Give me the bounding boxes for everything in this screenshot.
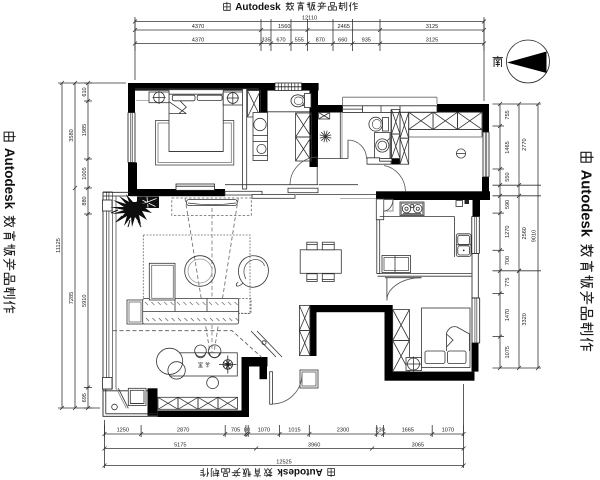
svg-text:1665: 1665 — [402, 428, 414, 434]
svg-text:550: 550 — [505, 172, 511, 181]
svg-text:2870: 2870 — [177, 428, 189, 434]
svg-text:3065: 3065 — [412, 443, 424, 449]
svg-text:1465: 1465 — [505, 141, 511, 153]
svg-text:1070: 1070 — [442, 428, 454, 434]
svg-text:Autodesk: Autodesk — [578, 170, 594, 238]
svg-text:1015: 1015 — [288, 428, 300, 434]
svg-text:1470: 1470 — [505, 309, 511, 321]
svg-text:880: 880 — [82, 196, 88, 205]
svg-text:3960: 3960 — [308, 443, 320, 449]
svg-text:555: 555 — [295, 38, 304, 44]
svg-text:695: 695 — [82, 393, 88, 402]
svg-text:Autodesk: Autodesk — [235, 2, 281, 13]
svg-text:670: 670 — [276, 38, 285, 44]
svg-text:610: 610 — [82, 87, 88, 96]
svg-text:2560: 2560 — [522, 227, 528, 239]
svg-text:12525: 12525 — [276, 460, 292, 466]
svg-text:1270: 1270 — [505, 225, 511, 237]
svg-text:3125: 3125 — [426, 24, 438, 30]
svg-text:1005: 1005 — [82, 167, 88, 179]
svg-text:7285: 7285 — [69, 292, 75, 304]
svg-text:3125: 3125 — [426, 38, 438, 44]
svg-text:3580: 3580 — [69, 129, 75, 141]
svg-text:Autodesk: Autodesk — [277, 466, 323, 477]
svg-text:775: 775 — [505, 277, 511, 286]
svg-text:1985: 1985 — [82, 124, 88, 136]
svg-text:4370: 4370 — [192, 24, 204, 30]
svg-text:4370: 4370 — [192, 38, 204, 44]
svg-text:935: 935 — [362, 38, 371, 44]
svg-text:870: 870 — [316, 38, 325, 44]
svg-text:2770: 2770 — [522, 138, 528, 150]
svg-text:660: 660 — [338, 38, 347, 44]
svg-text:705: 705 — [231, 428, 240, 434]
svg-text:1560: 1560 — [278, 24, 290, 30]
svg-text:1070: 1070 — [258, 428, 270, 434]
svg-text:590: 590 — [505, 200, 511, 209]
svg-text:Autodesk: Autodesk — [2, 148, 17, 210]
svg-text:335: 335 — [261, 38, 270, 44]
svg-text:2300: 2300 — [337, 428, 349, 434]
svg-text:1250: 1250 — [117, 428, 129, 434]
svg-text:12110: 12110 — [302, 16, 317, 22]
svg-text:11125: 11125 — [56, 238, 62, 253]
svg-text:700: 700 — [505, 256, 511, 265]
svg-text:5175: 5175 — [174, 443, 186, 449]
svg-text:9010: 9010 — [532, 230, 538, 242]
svg-text:1075: 1075 — [505, 346, 511, 358]
svg-text:3320: 3320 — [522, 313, 528, 325]
svg-text:2465: 2465 — [338, 24, 350, 30]
svg-text:5910: 5910 — [82, 295, 88, 307]
svg-text:755: 755 — [505, 110, 511, 119]
